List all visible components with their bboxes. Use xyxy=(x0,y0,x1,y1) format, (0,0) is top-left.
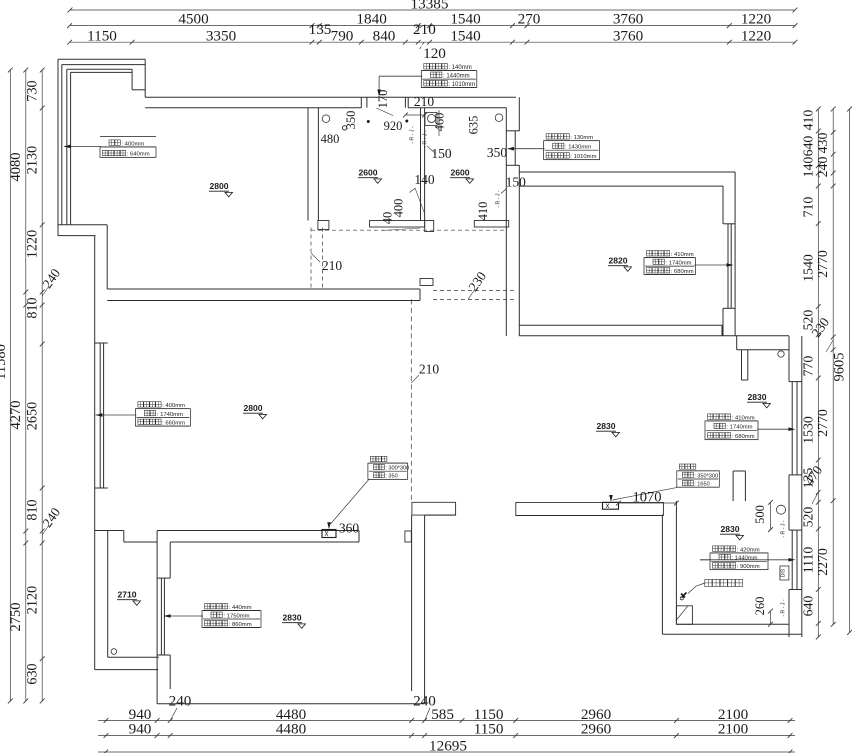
svg-text:: 420mm: : 420mm xyxy=(737,547,760,553)
svg-text:9605: 9605 xyxy=(832,353,848,382)
svg-text:: 1010mm: : 1010mm xyxy=(448,82,475,88)
svg-text:- R - J -: - R - J - xyxy=(781,520,787,538)
svg-text:1150: 1150 xyxy=(87,28,117,45)
svg-text:480: 480 xyxy=(321,132,340,146)
svg-text:710: 710 xyxy=(800,197,815,218)
svg-text:2770: 2770 xyxy=(815,250,830,278)
svg-text:1530: 1530 xyxy=(800,416,815,444)
svg-text:12695: 12695 xyxy=(429,737,467,753)
svg-text:DIS: DIS xyxy=(781,568,787,577)
svg-text:: 640mm: : 640mm xyxy=(127,152,150,158)
svg-text:1540: 1540 xyxy=(450,28,481,45)
svg-text:810: 810 xyxy=(24,297,40,318)
svg-text:: 440mm: : 440mm xyxy=(229,605,252,611)
svg-text:: 410mm: : 410mm xyxy=(671,252,694,258)
svg-text:2830: 2830 xyxy=(720,524,739,534)
svg-text:: 350: : 350 xyxy=(385,474,397,480)
svg-text:40: 40 xyxy=(381,212,395,225)
svg-text:260: 260 xyxy=(753,597,767,616)
svg-text:410: 410 xyxy=(800,110,815,131)
svg-text:3350: 3350 xyxy=(206,28,237,45)
svg-text:: 860mm: : 860mm xyxy=(229,622,252,628)
svg-text:840: 840 xyxy=(373,28,396,45)
svg-text:1220: 1220 xyxy=(24,230,40,258)
svg-text:170: 170 xyxy=(376,90,390,109)
svg-text:1220: 1220 xyxy=(741,11,772,28)
svg-text:: 130mm: : 130mm xyxy=(570,135,593,141)
svg-text:140: 140 xyxy=(414,172,435,187)
svg-text:2830: 2830 xyxy=(596,421,615,431)
svg-text:1540: 1540 xyxy=(450,11,481,28)
svg-text:2960: 2960 xyxy=(581,721,612,738)
svg-text:: 1430mm: : 1430mm xyxy=(565,145,591,151)
svg-text:640: 640 xyxy=(800,136,815,157)
svg-text:2120: 2120 xyxy=(24,586,40,614)
svg-text:: 300*300: : 300*300 xyxy=(385,466,409,472)
svg-text:140: 140 xyxy=(800,157,815,178)
svg-text:2800: 2800 xyxy=(243,403,262,413)
svg-text:4500: 4500 xyxy=(178,11,209,28)
svg-text:500: 500 xyxy=(753,505,767,524)
svg-text:2830: 2830 xyxy=(282,613,301,623)
svg-text:- R - J -: - R - J - xyxy=(781,599,787,617)
svg-text:- R - J -: - R - J - xyxy=(423,130,429,148)
svg-text:11580: 11580 xyxy=(0,344,9,380)
svg-text:2600: 2600 xyxy=(450,168,469,178)
svg-text:: 900mm: : 900mm xyxy=(737,564,760,570)
svg-text:940: 940 xyxy=(129,721,152,738)
svg-text:2830: 2830 xyxy=(747,392,766,402)
svg-text:: 1740mm: : 1740mm xyxy=(726,425,752,431)
svg-text:1110: 1110 xyxy=(800,547,815,574)
svg-text:: 410mm: : 410mm xyxy=(732,415,755,421)
svg-text:640: 640 xyxy=(800,596,815,617)
svg-text:1070: 1070 xyxy=(633,490,662,506)
svg-text:- R - J -: - R - J - xyxy=(410,126,416,144)
svg-text:4270: 4270 xyxy=(8,401,24,430)
svg-text:150: 150 xyxy=(506,175,527,190)
svg-text:120: 120 xyxy=(423,45,446,62)
svg-text:135: 135 xyxy=(309,21,332,38)
svg-text:210: 210 xyxy=(414,94,435,109)
svg-text:2130: 2130 xyxy=(24,146,40,174)
svg-text:2750: 2750 xyxy=(8,603,24,632)
svg-text:410: 410 xyxy=(476,202,490,221)
svg-text:: 680mm: : 680mm xyxy=(732,434,755,440)
svg-text:: 1010mm: : 1010mm xyxy=(570,154,596,160)
svg-text:635: 635 xyxy=(467,116,481,135)
svg-text:810: 810 xyxy=(24,499,40,520)
svg-text:1150: 1150 xyxy=(474,721,504,738)
svg-text:240: 240 xyxy=(169,693,192,710)
svg-text:210: 210 xyxy=(419,362,440,377)
svg-text:2800: 2800 xyxy=(209,181,228,191)
svg-text:: 680mm: : 680mm xyxy=(671,269,694,275)
svg-text:: 350*300: : 350*300 xyxy=(694,473,718,479)
svg-text:350: 350 xyxy=(487,145,508,160)
svg-text:: 1740mm: : 1740mm xyxy=(157,412,183,418)
svg-text:3760: 3760 xyxy=(613,28,644,45)
svg-text:2270: 2270 xyxy=(815,548,830,576)
svg-text:270: 270 xyxy=(518,11,541,28)
svg-text:730: 730 xyxy=(24,80,40,101)
svg-text:1540: 1540 xyxy=(800,254,815,282)
svg-text:210: 210 xyxy=(322,258,343,273)
svg-text:3760: 3760 xyxy=(613,11,644,28)
svg-text:2600: 2600 xyxy=(358,168,377,178)
svg-text:2820: 2820 xyxy=(608,256,627,266)
svg-text:: 1440mm: : 1440mm xyxy=(731,556,757,562)
svg-text:: 1750mm: : 1750mm xyxy=(223,613,249,619)
svg-text:210: 210 xyxy=(413,21,436,38)
svg-text:2710: 2710 xyxy=(117,590,136,600)
svg-text:: 1740mm: : 1740mm xyxy=(665,261,691,267)
svg-text:360: 360 xyxy=(339,521,360,536)
svg-text:430: 430 xyxy=(815,133,830,154)
svg-text:: 1440mm: : 1440mm xyxy=(443,74,470,80)
svg-text:630: 630 xyxy=(24,663,40,684)
svg-text:240: 240 xyxy=(815,157,830,178)
svg-text:790: 790 xyxy=(331,28,354,45)
svg-text:4480: 4480 xyxy=(276,721,307,738)
svg-text:2770: 2770 xyxy=(815,409,830,437)
svg-text:520: 520 xyxy=(800,507,815,528)
svg-text:2650: 2650 xyxy=(24,402,40,430)
svg-text:: 400mm: : 400mm xyxy=(121,141,144,147)
svg-text:4080: 4080 xyxy=(8,153,24,182)
svg-text:770: 770 xyxy=(800,356,815,377)
svg-text:: 400mm: : 400mm xyxy=(162,403,185,409)
svg-text:13385: 13385 xyxy=(411,0,449,13)
svg-text:1220: 1220 xyxy=(741,28,772,45)
svg-text:920: 920 xyxy=(384,119,403,133)
svg-text:: 140mm: : 140mm xyxy=(448,65,471,71)
svg-text:- R - J -: - R - J - xyxy=(496,190,502,208)
svg-text:: 1650: : 1650 xyxy=(694,482,710,488)
svg-text:1840: 1840 xyxy=(356,11,387,28)
svg-text:: 660mm: : 660mm xyxy=(162,421,185,427)
svg-text:150: 150 xyxy=(431,146,452,161)
svg-text:2100: 2100 xyxy=(718,721,749,738)
